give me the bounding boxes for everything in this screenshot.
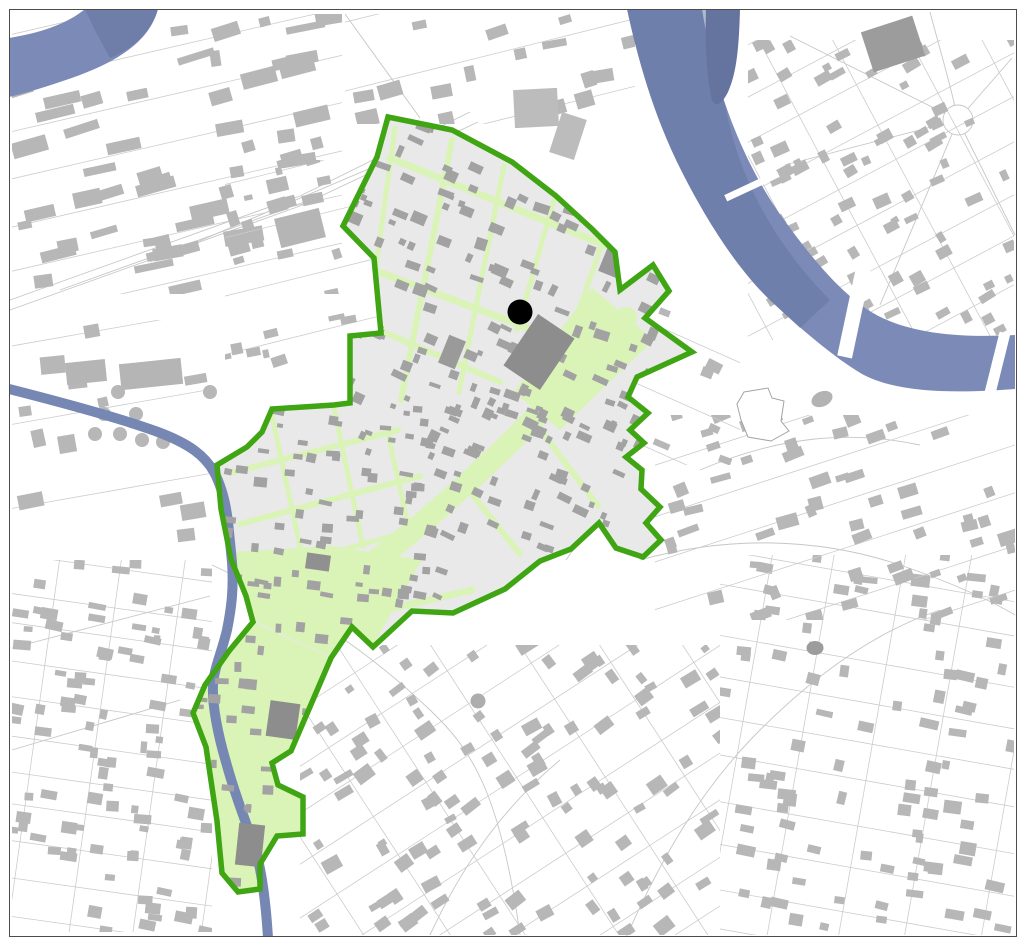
map-page [0, 0, 1024, 947]
map-layers [0, 0, 1024, 947]
map-canvas[interactable] [0, 0, 1024, 947]
location-marker[interactable] [508, 300, 533, 325]
